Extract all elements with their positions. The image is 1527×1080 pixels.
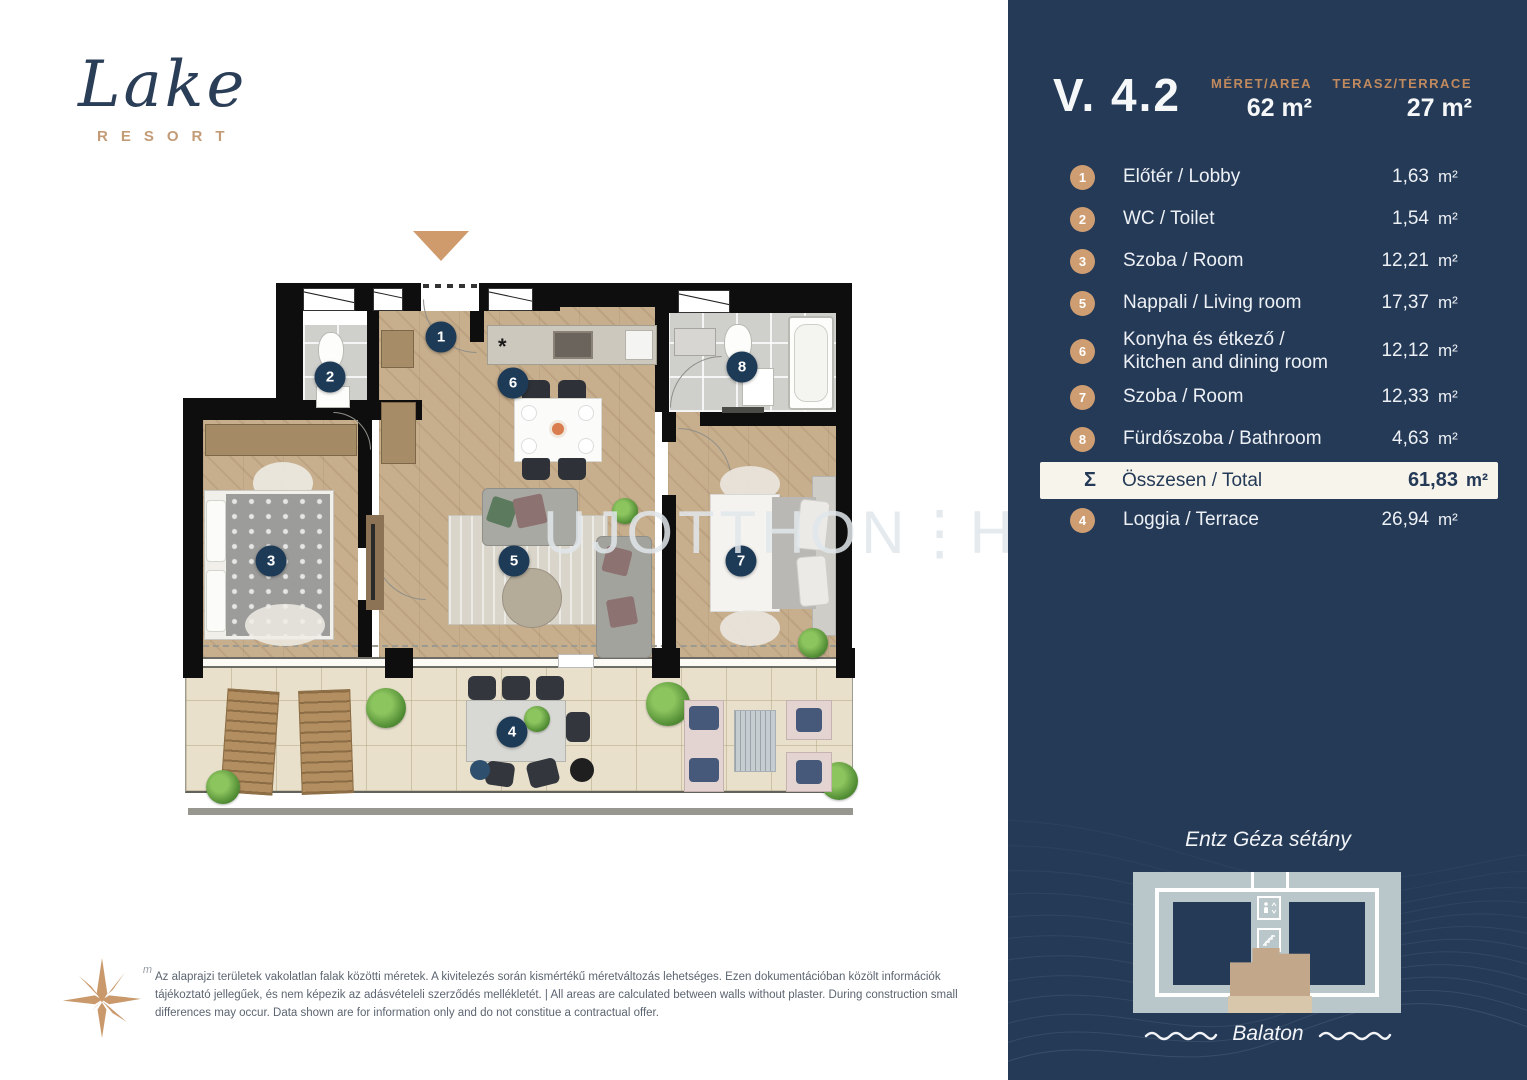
plan-badge-8: 8 — [727, 352, 758, 383]
wave-icon — [1318, 1027, 1392, 1041]
room-number-badge: 4 — [1070, 508, 1095, 533]
room-area: 12,21 — [1371, 250, 1429, 272]
kitchen-sink — [553, 331, 593, 359]
lobby-cabinet — [381, 402, 416, 464]
plant — [366, 688, 406, 728]
room-area: 12,12 — [1371, 340, 1429, 362]
plate — [521, 405, 537, 421]
entrance-threshold — [423, 284, 477, 288]
room-row: 5 Nappali / Living room 17,37 m² — [1070, 282, 1465, 324]
room-area: 17,37 — [1371, 292, 1429, 314]
info-sidebar: V. 4.2 MÉRET/AREA 62 m² TERASZ/TERRACE 2… — [1008, 0, 1527, 1080]
room-unit: m² — [1429, 293, 1465, 313]
room-number-badge: 5 — [1070, 291, 1095, 316]
room-unit: m² — [1429, 387, 1465, 407]
room-number-badge: 2 — [1070, 207, 1095, 232]
room-label: Fürdőszoba / Bathroom — [1123, 427, 1345, 450]
room-unit: m² — [1429, 341, 1465, 361]
room-label: Szoba / Room — [1123, 385, 1345, 408]
corridor-line — [1251, 872, 1254, 890]
bath-mat — [722, 407, 764, 413]
room-label: Szoba / Room — [1123, 249, 1345, 272]
wave-icon — [1144, 1027, 1218, 1041]
plant — [798, 628, 828, 658]
plan-badge-5: 5 — [499, 546, 530, 577]
unit-id: V. 4.2 — [1053, 68, 1181, 122]
total-row: Σ Összesen / Total 61,83 m² — [1040, 462, 1498, 499]
plan-badge-3: 3 — [256, 546, 287, 577]
plant — [206, 770, 240, 804]
terrace-side-table — [470, 760, 490, 780]
lobby-cabinet — [381, 330, 414, 368]
compass-label: m — [143, 964, 152, 976]
room-unit: m² — [1429, 510, 1465, 530]
plate — [578, 438, 594, 454]
room-number-badge: 3 — [1070, 249, 1095, 274]
floorplan-page: Lake RESORT — [0, 0, 1527, 1080]
brand-logo: Lake — [78, 48, 247, 122]
compass-icon: m — [52, 958, 152, 1038]
room-row: 8 Fürdőszoba / Bathroom 4,63 m² — [1070, 418, 1465, 460]
location-minimap — [1133, 872, 1401, 1013]
bed-3-pillow — [206, 500, 226, 562]
plan-badge-2: 2 — [315, 362, 346, 393]
plan-badge-6: 6 — [498, 368, 529, 399]
room-row: 1 Előtér / Lobby 1,63 m² — [1070, 156, 1465, 198]
terrace-chair — [566, 712, 590, 742]
room-area: 26,94 — [1371, 509, 1429, 531]
terrace-sill — [558, 654, 594, 668]
bathtub-inner — [794, 324, 828, 402]
size-label: MÉRET/AREA — [1180, 76, 1312, 91]
terrace-value: 27 m² — [1330, 94, 1472, 123]
plate — [521, 438, 537, 454]
room-label: Konyha és étkező / Kitchen and dining ro… — [1123, 328, 1345, 374]
room-row: 2 WC / Toilet 1,54 m² — [1070, 198, 1465, 240]
terrace-chair — [536, 676, 564, 700]
terrace-stat: TERASZ/TERRACE 27 m² — [1330, 76, 1472, 123]
rug-oval — [720, 610, 780, 646]
wardrobe — [205, 424, 357, 456]
room-row: 6 Konyha és étkező / Kitchen and dining … — [1070, 324, 1465, 378]
room-area: 4,63 — [1371, 428, 1429, 450]
plan-badge-4: 4 — [497, 717, 528, 748]
room-area: 1,63 — [1371, 166, 1429, 188]
entrance-arrow-icon — [413, 231, 469, 261]
brand-tagline: RESORT — [97, 128, 238, 145]
grill — [570, 758, 594, 782]
room-number-badge: 8 — [1070, 427, 1095, 452]
bowl — [549, 420, 567, 438]
room-unit: m² — [1429, 209, 1465, 229]
loggia-row: 4 Loggia / Terrace 26,94 m² — [1070, 500, 1465, 540]
room-unit: m² — [1429, 251, 1465, 271]
plan-badge-1: 1 — [426, 322, 457, 353]
terrace-chair — [502, 676, 530, 700]
unit-terrace-highlight — [1228, 996, 1312, 1013]
room-number-badge: 7 — [1070, 385, 1095, 410]
bed-3-pillow — [206, 570, 226, 632]
room-unit: m² — [1429, 429, 1465, 449]
water-label-row: Balaton — [1118, 1022, 1418, 1046]
elevator-icon — [1257, 896, 1281, 920]
room-row: 7 Szoba / Room 12,33 m² — [1070, 376, 1465, 418]
window — [488, 288, 533, 311]
stove — [625, 330, 653, 360]
dining-chair — [522, 458, 550, 480]
window — [373, 288, 403, 311]
room-label: WC / Toilet — [1123, 207, 1345, 230]
outdoor-coffee-table — [734, 710, 776, 772]
size-value: 62 m² — [1180, 94, 1312, 123]
window — [303, 288, 355, 311]
room-number-badge: 1 — [1070, 165, 1095, 190]
street-label: Entz Géza sétány — [1118, 828, 1418, 852]
room-area: 12,33 — [1371, 386, 1429, 408]
watermark: UJOTTHON⋮HU — [543, 498, 1066, 568]
total-unit: m² — [1458, 470, 1498, 491]
terrace-chair — [468, 676, 496, 700]
water-label: Balaton — [1232, 1022, 1303, 1046]
coffee-table-round — [502, 568, 562, 628]
sofa-cushion-mauve — [606, 596, 638, 628]
room-area: 1,54 — [1371, 208, 1429, 230]
total-label: Összesen / Total — [1122, 470, 1262, 492]
sigma-icon: Σ — [1084, 469, 1096, 492]
dining-chair — [558, 458, 586, 480]
outdoor-pillow — [689, 758, 719, 782]
slab-edge — [188, 808, 853, 815]
room-row: 3 Szoba / Room 12,21 m² — [1070, 240, 1465, 282]
tv — [371, 524, 375, 600]
room-unit: m² — [1429, 167, 1465, 187]
total-area: 61,83 — [1408, 469, 1458, 492]
plant — [524, 706, 550, 732]
tv-cabinet — [366, 515, 384, 610]
room-label: Nappali / Living room — [1123, 291, 1345, 314]
outdoor-pillow — [689, 706, 719, 730]
room-label: Loggia / Terrace — [1123, 508, 1345, 531]
lounger — [298, 689, 354, 795]
kitchen-star-label: * — [498, 334, 507, 360]
terrace-glazing — [203, 657, 836, 668]
window — [678, 290, 730, 313]
bathroom-sink — [674, 328, 716, 356]
terrace-label: TERASZ/TERRACE — [1330, 76, 1472, 91]
room-number-badge: 6 — [1070, 339, 1095, 364]
rug-oval — [245, 604, 325, 646]
outdoor-pillow — [796, 708, 822, 732]
corridor-line — [1286, 872, 1289, 890]
disclaimer-text: Az alaprajzi területek vakolatlan falak … — [155, 969, 967, 1022]
plate — [578, 405, 594, 421]
room-label: Előtér / Lobby — [1123, 165, 1345, 188]
outdoor-pillow — [796, 760, 822, 784]
size-stat: MÉRET/AREA 62 m² — [1180, 76, 1312, 123]
